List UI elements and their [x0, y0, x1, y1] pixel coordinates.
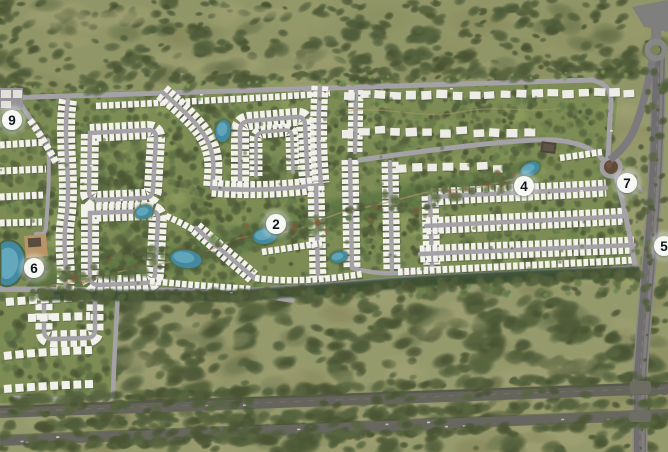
- svg-text:9: 9: [8, 113, 16, 128]
- svg-text:6: 6: [30, 261, 38, 276]
- svg-text:2: 2: [272, 217, 280, 232]
- svg-text:7: 7: [623, 176, 631, 191]
- svg-text:4: 4: [520, 179, 528, 194]
- svg-text:5: 5: [660, 239, 668, 254]
